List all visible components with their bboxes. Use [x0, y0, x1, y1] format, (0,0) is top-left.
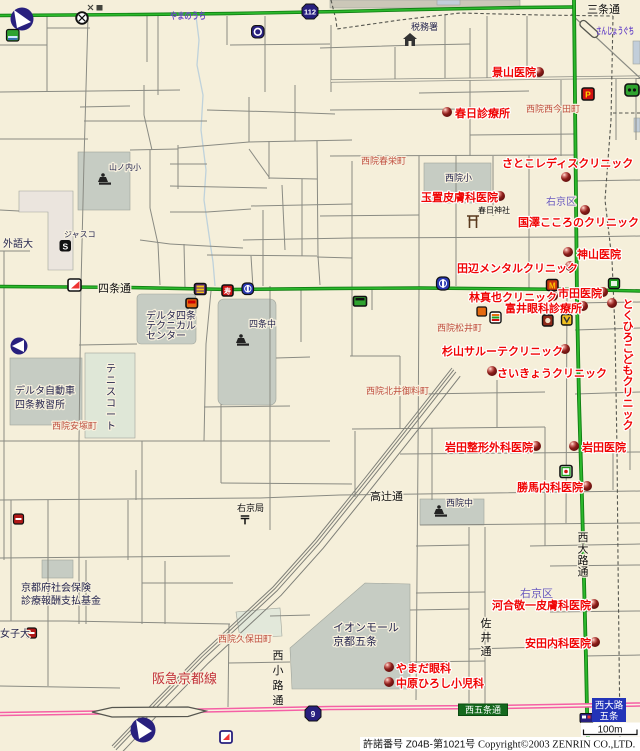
svg-text:四条中: 四条中: [249, 318, 276, 329]
svg-text:神山医院: 神山医院: [577, 247, 621, 261]
svg-text:岩田医院: 岩田医院: [581, 440, 626, 454]
svg-text:西院中: 西院中: [446, 497, 473, 508]
svg-text:市田医院: 市田医院: [558, 286, 602, 300]
svg-text:田辺メンタルクリニック: 田辺メンタルクリニック: [457, 262, 578, 275]
svg-text:ジャスコ: ジャスコ: [64, 230, 96, 239]
svg-text:寿: 寿: [224, 287, 231, 296]
svg-text:京都府社会保険: 京都府社会保険: [21, 581, 91, 594]
svg-text:四条通: 四条通: [98, 281, 131, 295]
svg-text:西院春栄町: 西院春栄町: [361, 155, 406, 166]
svg-text:勝馬内科医院: 勝馬内科医院: [517, 480, 583, 494]
svg-text:西院松井町: 西院松井町: [437, 322, 482, 333]
svg-text:テニスコート: テニスコート: [106, 364, 116, 433]
svg-text:西大路: 西大路: [595, 700, 624, 712]
svg-text:春日神社: 春日神社: [478, 205, 510, 215]
svg-text:センター: センター: [146, 330, 186, 342]
svg-text:春日診療所: 春日診療所: [455, 106, 510, 120]
svg-text:林真也クリニック: 林真也クリニック: [469, 290, 557, 304]
svg-text:M: M: [549, 282, 556, 291]
svg-text:税務署: 税務署: [411, 21, 438, 32]
svg-text:佐井通: 佐井通: [481, 616, 492, 658]
svg-text:安田内科医院: 安田内科医院: [525, 636, 591, 650]
svg-text:河合敬一皮膚科医院: 河合敬一皮膚科医院: [492, 598, 591, 612]
svg-text:S: S: [62, 241, 68, 251]
svg-text:西院久保田町: 西院久保田町: [218, 633, 272, 644]
svg-text:西院北井御料町: 西院北井御料町: [366, 385, 429, 396]
svg-text:山ノ内小: 山ノ内小: [109, 162, 141, 172]
svg-text:許諾番号 Z04B-第1021号 Copyright©200: 許諾番号 Z04B-第1021号 Copyright©2003 ZENRIN C…: [363, 738, 635, 751]
svg-text:右京局: 右京局: [237, 502, 264, 513]
svg-text:高辻通: 高辻通: [370, 489, 403, 503]
svg-text:中原ひろし小児科: 中原ひろし小児科: [396, 676, 484, 690]
svg-text:国澤こころのクリニック: 国澤こころのクリニック: [518, 215, 639, 229]
svg-text:玉置皮膚科医院: 玉置皮膚科医院: [421, 190, 498, 204]
svg-text:岩田整形外科医院: 岩田整形外科医院: [444, 440, 533, 454]
svg-text:五条: 五条: [599, 711, 619, 723]
svg-text:西大路通: 西大路通: [578, 532, 589, 579]
svg-text:杉山サルーテクリニック: 杉山サルーテクリニック: [442, 344, 563, 358]
svg-text:外語大: 外語大: [3, 237, 33, 250]
svg-text:112: 112: [304, 8, 316, 17]
svg-text:西院西今田町: 西院西今田町: [526, 103, 580, 114]
svg-text:西院安塚町: 西院安塚町: [52, 420, 97, 431]
svg-text:9: 9: [311, 710, 316, 719]
svg-text:京都五条: 京都五条: [333, 634, 377, 648]
svg-text:景山医院: 景山医院: [491, 65, 536, 79]
svg-text:富井眼科診療所: 富井眼科診療所: [505, 301, 582, 315]
svg-text:三条通: 三条通: [587, 2, 620, 16]
svg-text:女子大: 女子大: [0, 627, 30, 640]
svg-text:とくひろこどもクリニック: とくひろこどもクリニック: [623, 298, 634, 432]
svg-text:〒: 〒: [239, 513, 251, 527]
svg-text:やまのうち: やまのうち: [170, 11, 206, 21]
svg-text:四条教習所: 四条教習所: [15, 398, 65, 411]
svg-text:やまだ眼科: やまだ眼科: [396, 661, 451, 675]
svg-text:イオンモール: イオンモール: [333, 621, 399, 634]
svg-text:さとこレディスクリニック: さとこレディスクリニック: [502, 156, 633, 170]
svg-text:西五条通: 西五条通: [465, 704, 501, 715]
svg-text:右京区: 右京区: [520, 586, 553, 600]
svg-text:デルタ自動車: デルタ自動車: [15, 384, 75, 397]
svg-text:右京区: 右京区: [546, 195, 576, 208]
svg-text:100m: 100m: [597, 725, 622, 736]
svg-text:P: P: [585, 90, 591, 100]
svg-text:さいきょうクリニック: さいきょうクリニック: [497, 367, 607, 380]
svg-text:さんじょうぐち: さんじょうぐち: [596, 26, 634, 36]
svg-text:西院小: 西院小: [445, 172, 472, 183]
svg-text:診療報酬支払基金: 診療報酬支払基金: [21, 594, 101, 607]
svg-text:阪急京都線: 阪急京都線: [152, 671, 217, 686]
